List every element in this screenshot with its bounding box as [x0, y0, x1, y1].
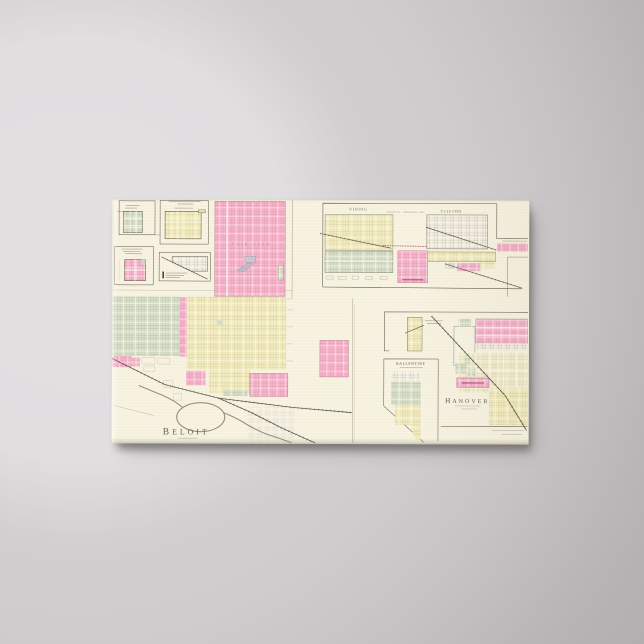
- svg-text:FAIR VIEW: FAIR VIEW: [232, 242, 273, 246]
- svg-text:BALLENTINE: BALLENTINE: [396, 361, 425, 365]
- svg-text:CLIFTON: CLIFTON: [441, 209, 462, 213]
- svg-text:BELOIT: BELOIT: [163, 427, 210, 437]
- svg-text:VINING: VINING: [349, 206, 367, 211]
